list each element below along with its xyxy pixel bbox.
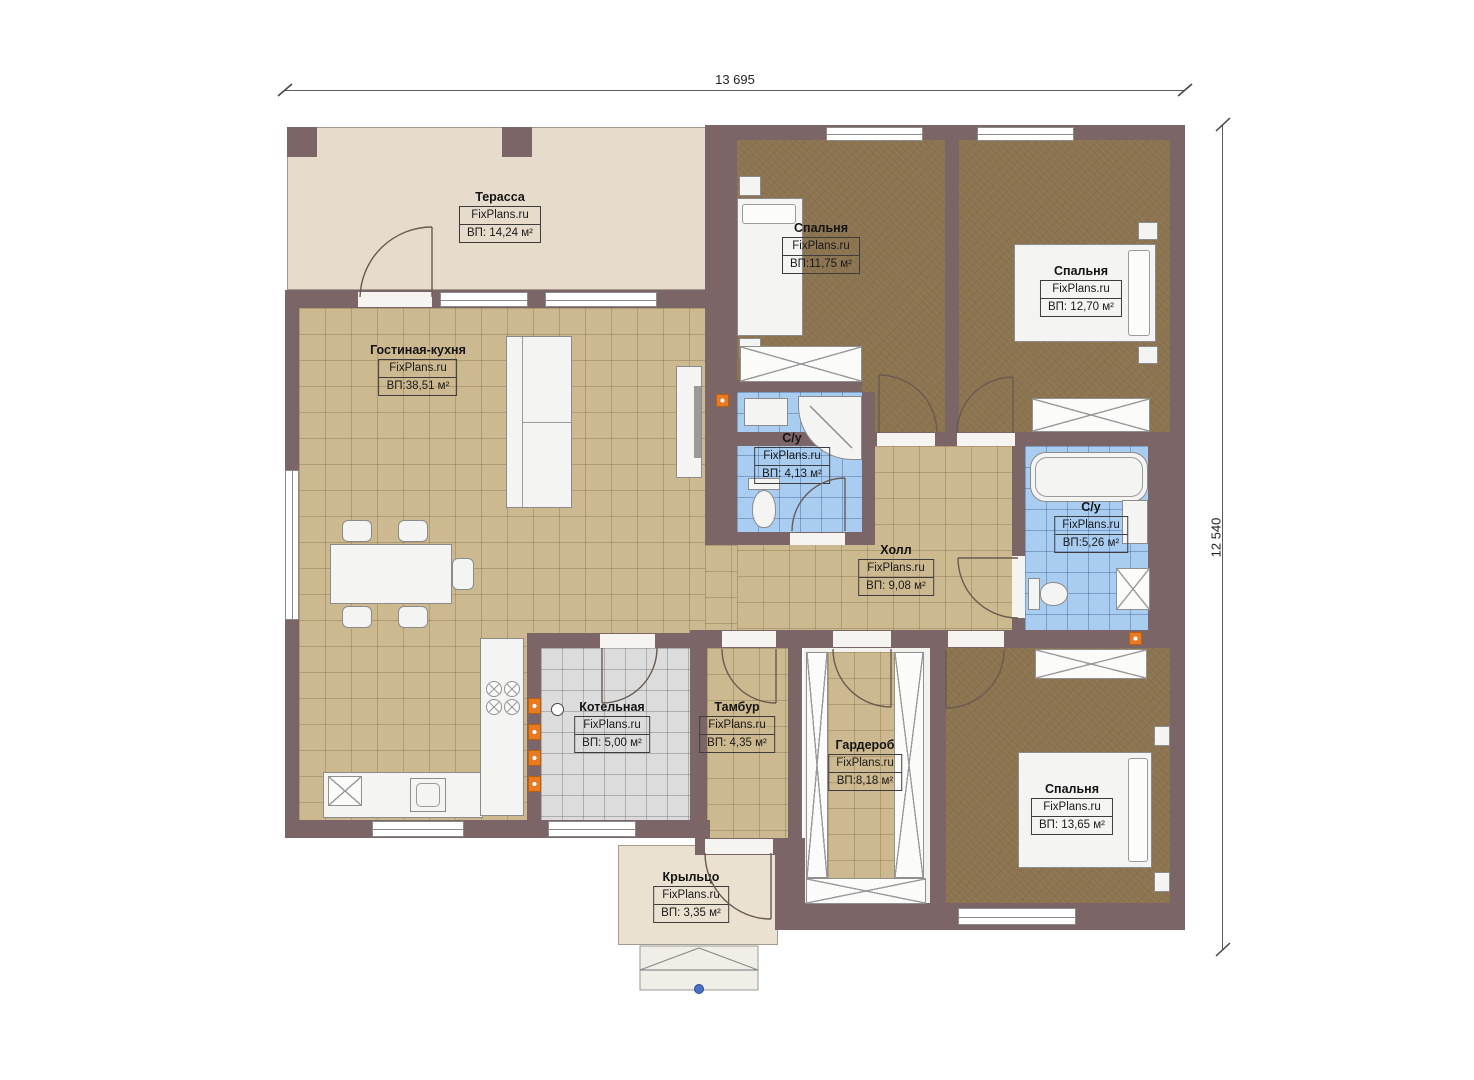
chair: [398, 606, 428, 628]
room-label-living-kitchen: Гостиная-кухня FixPlans.ru ВП:38,51 м²: [370, 343, 466, 396]
room-floor-passage: [705, 545, 737, 630]
room-info-box: FixPlans.ru ВП:8,18 м²: [828, 754, 902, 791]
wall: [775, 838, 805, 908]
counter-unit: [328, 776, 362, 806]
window: [826, 127, 923, 141]
stove-burner: [504, 699, 520, 715]
wall: [1170, 125, 1185, 930]
room-area: ВП: 12,70 м²: [1041, 298, 1121, 316]
nightstand: [739, 176, 761, 196]
watermark: FixPlans.ru: [1032, 799, 1112, 816]
dimension-label-height: 12 540: [1208, 518, 1223, 558]
room-info-box: FixPlans.ru ВП: 14,24 м²: [459, 206, 541, 243]
door-opening-bedroom-2: [957, 433, 1015, 446]
room-info-box: FixPlans.ru ВП: 12,70 м²: [1040, 280, 1122, 317]
room-label-bathroom-2: С/у FixPlans.ru ВП:5,26 м²: [1054, 500, 1128, 553]
door-opening-bedroom-3: [948, 631, 1004, 647]
door-opening-wardrobe: [833, 631, 891, 647]
nightstand: [1154, 726, 1170, 746]
room-label-bedroom-1: Спальня FixPlans.ru ВП:11,75 м²: [782, 221, 860, 274]
room-name: Спальня: [1040, 264, 1122, 278]
room-label-vestibule: Тамбур FixPlans.ru ВП: 4,35 м²: [699, 700, 775, 753]
entry-point-marker: [695, 985, 704, 994]
bathtub: [1030, 452, 1148, 502]
chair: [452, 558, 474, 590]
room-info-box: FixPlans.ru ВП:11,75 м²: [782, 237, 860, 274]
room-info-box: FixPlans.ru ВП: 3,35 м²: [653, 886, 729, 923]
nightstand: [1138, 222, 1158, 240]
room-area: ВП: 4,35 м²: [700, 734, 774, 752]
dining-table: [330, 544, 452, 604]
window: [285, 470, 299, 620]
room-area: ВП:11,75 м²: [783, 255, 859, 273]
watermark: FixPlans.ru: [380, 360, 457, 377]
room-name: С/у: [1054, 500, 1128, 514]
room-area: ВП: 5,00 м²: [575, 734, 649, 752]
room-info-box: FixPlans.ru ВП: 13,65 м²: [1031, 798, 1113, 835]
radiator-marker: [1129, 632, 1142, 645]
room-area: ВП:5,26 м²: [1055, 534, 1127, 552]
window: [440, 292, 528, 307]
stove-burner: [504, 681, 520, 697]
dimension-label-width: 13 695: [285, 72, 1185, 87]
room-label-bathroom-1: С/у FixPlans.ru ВП: 4,13 м²: [754, 431, 830, 484]
wall: [788, 648, 802, 838]
kitchen-counter: [480, 638, 524, 816]
wall: [1148, 446, 1170, 630]
room-label-terrace: Терасса FixPlans.ru ВП: 14,24 м²: [459, 190, 541, 243]
terrace-pilaster: [502, 127, 532, 157]
wall: [862, 392, 875, 545]
stove-burner: [486, 699, 502, 715]
room-name: Терасса: [459, 190, 541, 204]
chair: [398, 520, 428, 542]
watermark: FixPlans.ru: [1055, 517, 1127, 534]
pillow: [1128, 758, 1148, 862]
kitchen-sink-bowl: [416, 783, 440, 807]
room-info-box: FixPlans.ru ВП: 4,35 м²: [699, 716, 775, 753]
door-opening-vestibule: [722, 631, 776, 647]
room-info-box: FixPlans.ru ВП: 5,00 м²: [574, 716, 650, 753]
wall: [285, 820, 710, 838]
watermark: FixPlans.ru: [1041, 281, 1121, 298]
wall: [945, 125, 959, 445]
room-label-bedroom-2: Спальня FixPlans.ru ВП: 12,70 м²: [1040, 264, 1122, 317]
radiator-marker: [528, 698, 541, 714]
room-name: Тамбур: [699, 700, 775, 714]
room-area: ВП:38,51 м²: [380, 377, 457, 395]
door-opening-terrace: [358, 292, 432, 307]
room-area: ВП:8,18 м²: [829, 772, 901, 790]
washing-machine: [1116, 568, 1150, 610]
radiator-marker: [528, 776, 541, 792]
watermark: FixPlans.ru: [755, 448, 829, 465]
nightstand: [1154, 872, 1170, 892]
watermark: FixPlans.ru: [859, 560, 933, 577]
boiler-symbol: [551, 703, 564, 716]
window: [545, 292, 657, 307]
toilet-tank: [1028, 578, 1040, 610]
chair: [342, 606, 372, 628]
radiator-marker: [716, 394, 729, 407]
bathroom-sink: [744, 398, 788, 426]
room-area: ВП: 3,35 м²: [654, 904, 728, 922]
radiator-marker: [528, 750, 541, 766]
door-opening-boiler: [600, 634, 655, 648]
room-area: ВП: 14,24 м²: [460, 224, 540, 242]
terrace-pilaster: [287, 127, 317, 157]
watermark: FixPlans.ru: [783, 238, 859, 255]
window: [548, 821, 636, 837]
room-info-box: FixPlans.ru ВП: 4,13 м²: [754, 447, 830, 484]
watermark: FixPlans.ru: [460, 207, 540, 224]
watermark: FixPlans.ru: [700, 717, 774, 734]
room-name: Котельная: [574, 700, 650, 714]
wardrobe-unit: [740, 346, 862, 382]
window: [977, 127, 1074, 141]
room-name: Спальня: [1031, 782, 1113, 796]
sofa: [506, 336, 572, 508]
wardrobe-unit: [1035, 649, 1147, 679]
room-info-box: FixPlans.ru ВП:38,51 м²: [379, 359, 458, 396]
wardrobe-unit: [806, 652, 828, 878]
radiator-marker: [528, 724, 541, 740]
room-label-bedroom-3: Спальня FixPlans.ru ВП: 13,65 м²: [1031, 782, 1113, 835]
wall: [705, 125, 737, 545]
floor-plan-canvas: 13 695 12 540: [0, 0, 1474, 1080]
door-opening-bedroom-1: [877, 433, 935, 446]
nightstand: [1138, 346, 1158, 364]
room-name: Гостиная-кухня: [370, 343, 466, 357]
tv: [694, 386, 701, 458]
room-name: С/у: [754, 431, 830, 445]
room-label-boiler: Котельная FixPlans.ru ВП: 5,00 м²: [574, 700, 650, 753]
room-name: Спальня: [782, 221, 860, 235]
window: [958, 908, 1076, 925]
wardrobe-unit: [1032, 398, 1150, 432]
watermark: FixPlans.ru: [654, 887, 728, 904]
toilet: [752, 490, 776, 528]
window: [372, 821, 464, 837]
watermark: FixPlans.ru: [575, 717, 649, 734]
room-area: ВП: 4,13 м²: [755, 465, 829, 483]
dimension-line-top: [285, 90, 1185, 91]
room-label-hall: Холл FixPlans.ru ВП: 9,08 м²: [858, 543, 934, 596]
wardrobe-unit: [806, 878, 926, 904]
watermark: FixPlans.ru: [829, 755, 901, 772]
room-label-porch: Крыльцо FixPlans.ru ВП: 3,35 м²: [653, 870, 729, 923]
room-area: ВП: 9,08 м²: [859, 577, 933, 595]
porch-steps: [640, 946, 758, 994]
room-name: Холл: [858, 543, 934, 557]
room-name: Крыльцо: [653, 870, 729, 884]
pillow: [1128, 250, 1150, 336]
stove-burner: [486, 681, 502, 697]
room-info-box: FixPlans.ru ВП:5,26 м²: [1054, 516, 1128, 553]
wall: [930, 648, 946, 905]
door-opening-bathroom-2: [1012, 556, 1025, 618]
room-info-box: FixPlans.ru ВП: 9,08 м²: [858, 559, 934, 596]
room-name: Гардероб: [828, 738, 902, 752]
toilet: [1040, 582, 1068, 606]
room-area: ВП: 13,65 м²: [1032, 816, 1112, 834]
door-opening-bathroom-1: [790, 533, 845, 545]
room-label-wardrobe: Гардероб FixPlans.ru ВП:8,18 м²: [828, 738, 902, 791]
door-opening-entry: [705, 839, 773, 854]
chair: [342, 520, 372, 542]
